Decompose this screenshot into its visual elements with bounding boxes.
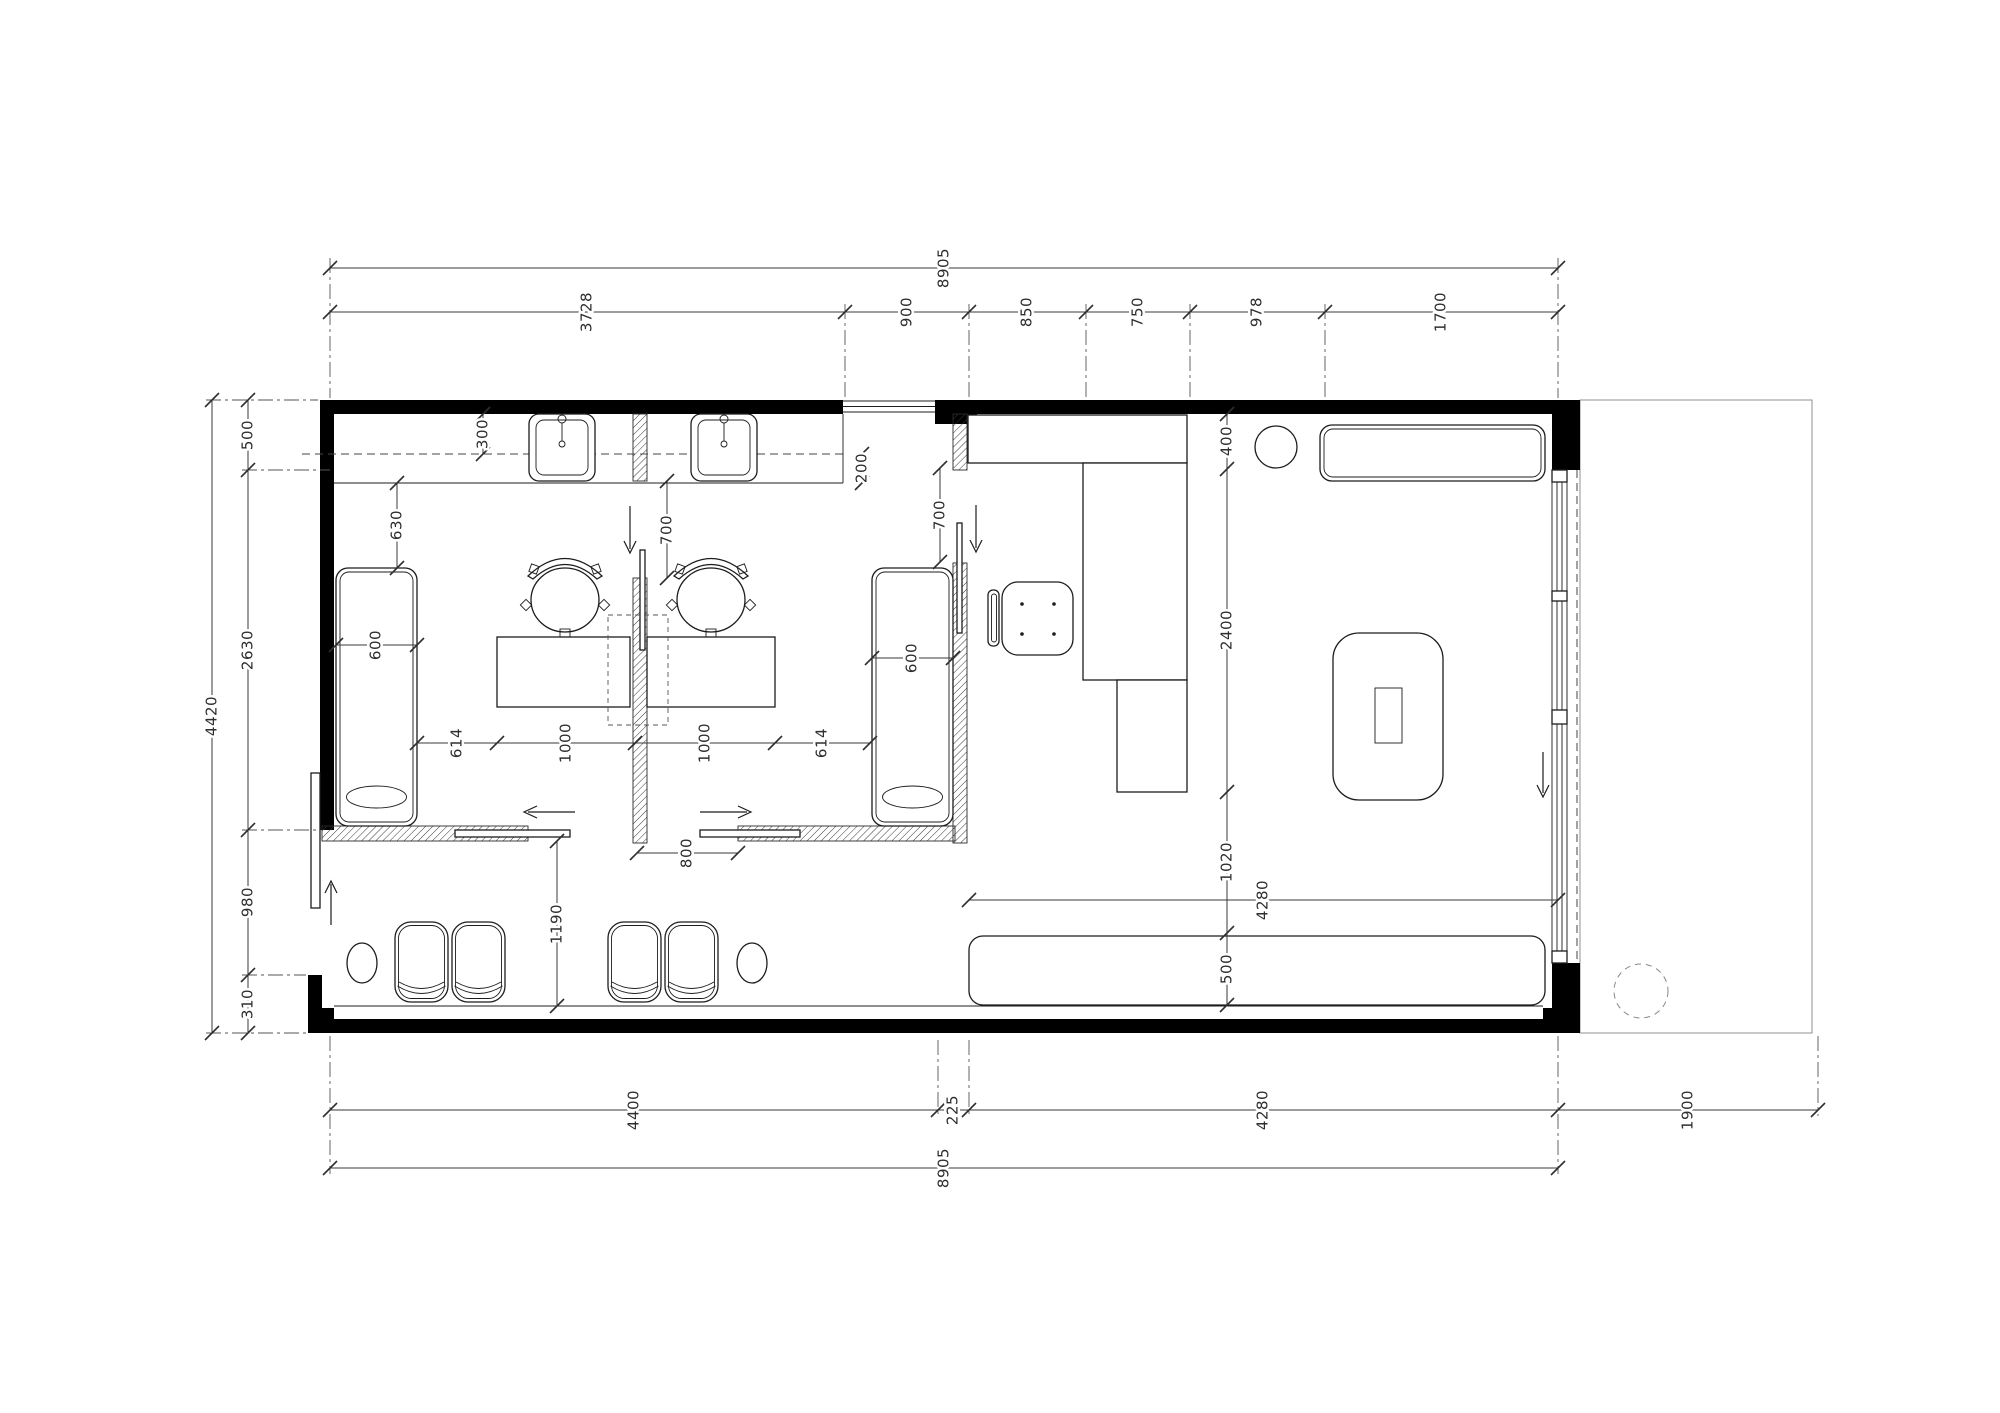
bottom-bench [969, 936, 1545, 1005]
dim-top-750: 750 [1129, 297, 1147, 327]
bottom-step-left [322, 1008, 334, 1021]
bottom-step-right [1543, 1008, 1555, 1021]
dim-bench-4280: 4280 [1254, 880, 1272, 920]
extension-lines [206, 258, 1818, 1174]
dimension-lines [205, 261, 1825, 1175]
dim-left-500: 500 [239, 420, 257, 450]
sink-room2 [691, 414, 757, 481]
right-window-wall [1552, 470, 1567, 963]
office-chair [988, 582, 1073, 655]
dim-right-1020: 1020 [1218, 842, 1236, 882]
entry-door-leaf [311, 773, 320, 908]
room1-sliding-leaf [455, 830, 570, 837]
dim-desk-614b: 614 [813, 728, 831, 758]
terrace-planter-circle [1614, 964, 1668, 1018]
stool [1255, 426, 1297, 468]
top-wall-window [843, 401, 935, 412]
mullion [1552, 470, 1567, 482]
floor-plan-drawing: 8905 3728 900 850 750 978 1700 4420 500 … [0, 0, 2000, 1413]
floor-plan-sheet: 8905 3728 900 850 750 978 1700 4420 500 … [0, 0, 2000, 1413]
dim-top-850: 850 [1018, 297, 1036, 327]
chair-room2 [666, 559, 755, 638]
window-slide-arrow [1537, 752, 1549, 797]
terrace [1577, 400, 1812, 1033]
desk-room2 [647, 637, 775, 707]
room1-door-arrow [624, 506, 636, 553]
partition-east-upper [953, 414, 967, 470]
dim-left-2630: 2630 [239, 630, 257, 670]
mullion [1552, 710, 1567, 724]
dim-top-978: 978 [1248, 297, 1266, 327]
dim-corridor-1190: 1190 [548, 904, 566, 944]
dim-top-900: 900 [898, 297, 916, 327]
dim-top-overall: 8905 [935, 248, 953, 288]
top-wall-east [977, 400, 1552, 414]
dim-desk-1000a: 1000 [557, 723, 575, 763]
dim-right-2400: 2400 [1218, 610, 1236, 650]
side-table [737, 943, 767, 983]
dim-door2-700: 700 [931, 500, 949, 530]
waiting-chair [608, 922, 661, 1002]
dim-door1-700: 700 [658, 515, 676, 545]
mullion [1552, 591, 1567, 601]
dim-desk-1000b: 1000 [696, 723, 714, 763]
waiting-chair [395, 922, 448, 1002]
dim-counter-300: 300 [474, 419, 492, 449]
partition-mid-upper [633, 414, 647, 481]
dim-top-1700: 1700 [1432, 292, 1450, 332]
dim-left-310: 310 [239, 989, 257, 1019]
dim-left-overall: 4420 [203, 696, 221, 736]
room2-door-leaf [957, 523, 962, 633]
dim-bottom-4400: 4400 [625, 1090, 643, 1130]
dim-bottom-1900: 1900 [1679, 1090, 1697, 1130]
dim-left-980: 980 [239, 887, 257, 917]
dim-bottom-225: 225 [944, 1095, 962, 1125]
top-bench [1320, 425, 1545, 481]
room2-door-arrow [970, 505, 982, 552]
corner-top-right [1552, 400, 1580, 470]
dim-bottom-4280: 4280 [1254, 1090, 1272, 1130]
dim-corridor-800: 800 [678, 838, 696, 868]
reception-desk [968, 415, 1187, 792]
bottom-wall [308, 1019, 1580, 1033]
left-wall [320, 400, 334, 830]
dim-right-500: 500 [1218, 954, 1236, 984]
dim-bed2-600: 600 [903, 643, 921, 673]
room2-slide-arrow [700, 806, 751, 818]
desk-room1 [497, 637, 630, 707]
entry-arrow [325, 881, 337, 925]
bed-room1 [336, 568, 417, 826]
side-table [347, 943, 377, 983]
chair-room1 [520, 559, 609, 638]
dim-counter-200: 200 [853, 453, 871, 483]
bed-room2 [872, 568, 953, 826]
left-wall-stub [308, 975, 322, 1033]
room1-slide-arrow [524, 806, 575, 818]
dim-bed1-600: 600 [367, 630, 385, 660]
waiting-chair [452, 922, 505, 1002]
sink-room1 [529, 414, 595, 481]
mullion [1552, 951, 1567, 963]
dim-right-400: 400 [1218, 426, 1236, 456]
lounge-rug-table [1333, 633, 1443, 800]
dim-desk-614a: 614 [448, 728, 466, 758]
dim-bottom-overall: 8905 [935, 1148, 953, 1188]
dim-clearance-630: 630 [388, 510, 406, 540]
room2-sliding-leaf [700, 830, 800, 837]
dim-top-3728: 3728 [578, 292, 596, 332]
top-wall-west [320, 400, 843, 414]
room1-door-leaf [640, 550, 645, 650]
waiting-chair [665, 922, 718, 1002]
